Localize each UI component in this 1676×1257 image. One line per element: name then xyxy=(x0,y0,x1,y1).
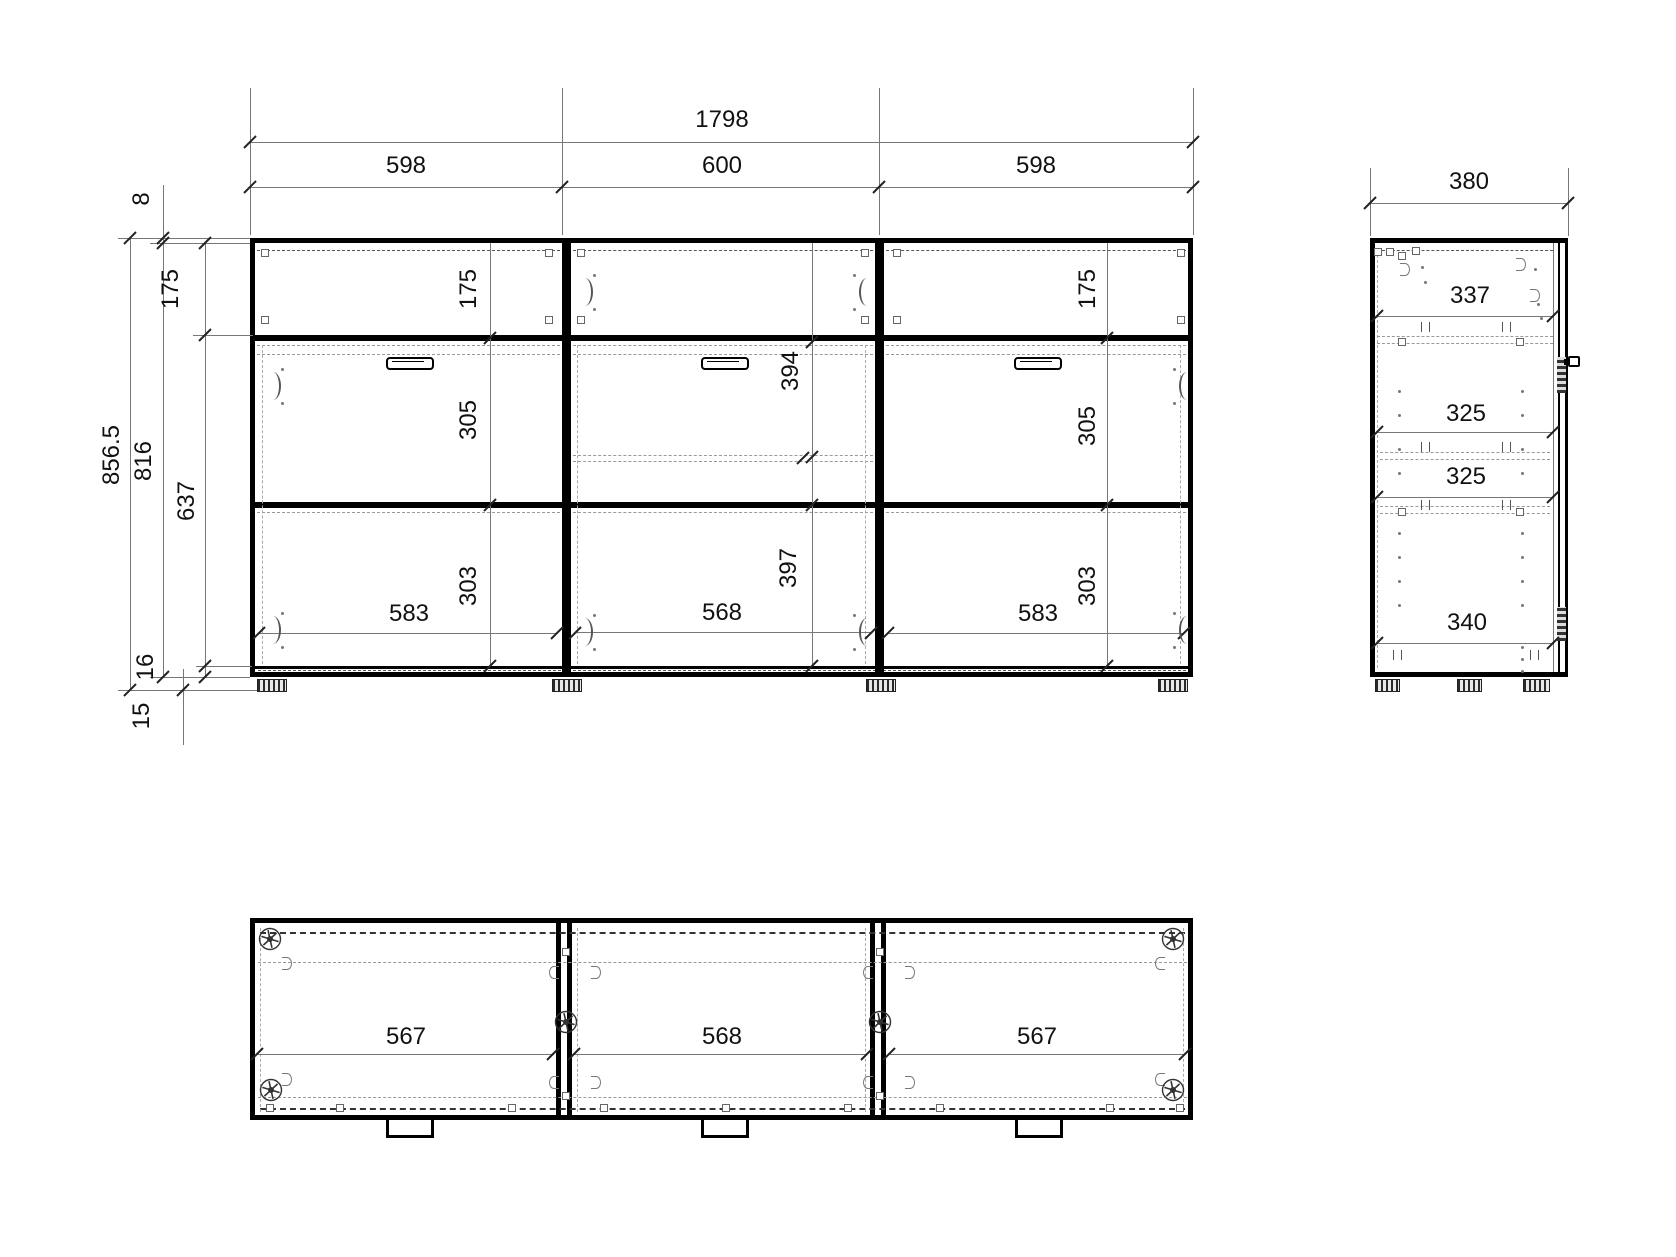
cabinet-foot xyxy=(552,679,582,692)
pin-hole-dot xyxy=(1398,580,1401,583)
front-dim-line xyxy=(575,632,871,633)
front-shelf-row1 xyxy=(255,335,1188,341)
front-dim-line xyxy=(1107,243,1108,666)
pin-hole-dot xyxy=(1398,448,1401,451)
cam-hook xyxy=(905,966,915,979)
hinge-pin-dot xyxy=(281,402,284,405)
extension-line xyxy=(1193,88,1194,235)
drawer-handle-right xyxy=(1014,357,1062,370)
pin-hole-dot xyxy=(1521,556,1524,559)
dowel-pin-mark xyxy=(1421,322,1430,332)
side-hidden-shelf xyxy=(1380,459,1550,460)
front-top-hidden-line xyxy=(573,250,873,251)
dim-label-col2-row2: 394 xyxy=(777,351,805,391)
cam-hook xyxy=(282,957,292,970)
fitting-mark xyxy=(1516,508,1524,516)
fitting-mark xyxy=(936,1104,944,1112)
fitting-mark xyxy=(1374,248,1382,256)
fitting-mark xyxy=(600,1104,608,1112)
pin-hole-dot xyxy=(1398,414,1401,417)
dim-label-col2-row3: 397 xyxy=(775,548,803,588)
fitting-mark xyxy=(722,1104,730,1112)
pin-hole-dot xyxy=(1521,448,1524,451)
fitting-mark xyxy=(261,249,269,257)
fitting-mark xyxy=(1398,508,1406,516)
cabinet-foot xyxy=(866,679,896,692)
drawer-handle-middle xyxy=(701,357,749,370)
fitting-mark xyxy=(562,948,570,956)
side-dim-line xyxy=(1377,643,1553,644)
cam-hook xyxy=(549,1076,559,1089)
front-hidden-edge xyxy=(262,345,263,664)
dim-line-380 xyxy=(1370,203,1568,204)
front-hidden-line xyxy=(886,354,1186,355)
side-hidden-shelf xyxy=(1377,336,1553,337)
dim-label-section2-width: 568 xyxy=(702,1023,742,1051)
side-handle-knob xyxy=(1568,356,1580,367)
dim-line-816 xyxy=(163,185,164,677)
hinge-pin-dot xyxy=(593,614,596,617)
pin-hole-dot xyxy=(1398,472,1401,475)
plan-handle-middle xyxy=(701,1120,749,1138)
cam-hook xyxy=(905,1076,915,1089)
pin-hole-dot xyxy=(1521,472,1524,475)
fitting-mark xyxy=(1398,338,1406,346)
front-shelf-row2 xyxy=(255,502,1188,508)
pin-hole-dot xyxy=(1424,281,1427,284)
fitting-mark xyxy=(577,249,585,257)
hinge-pin-dot xyxy=(281,646,284,649)
cam-hook xyxy=(591,966,601,979)
pin-hole-dot xyxy=(1540,317,1543,320)
fitting-mark xyxy=(266,1104,274,1112)
pin-hole-dot xyxy=(1521,646,1524,649)
dim-label-col1-row3: 303 xyxy=(455,566,483,606)
front-hidden-line xyxy=(573,345,873,346)
dim-label-col3-width: 598 xyxy=(1016,152,1056,180)
extension-line xyxy=(118,238,250,239)
cam-hook xyxy=(591,1076,601,1089)
fitting-mark xyxy=(545,316,553,324)
fitting-mark xyxy=(1398,252,1406,260)
pin-hole-dot xyxy=(1521,390,1524,393)
front-hidden-line xyxy=(573,354,873,355)
front-divider-2 xyxy=(875,243,884,672)
hinge-pin-dot xyxy=(1173,368,1176,371)
dim-line-1798 xyxy=(250,142,1193,143)
cam-hook xyxy=(282,1073,292,1086)
cam-wheel xyxy=(259,1078,283,1102)
dim-label-side-shelf4: 340 xyxy=(1447,609,1487,637)
front-mid-hidden-shelf xyxy=(573,461,873,462)
hinge-pin-dot xyxy=(281,368,284,371)
front-dim-line xyxy=(490,243,491,666)
cam-hook xyxy=(1155,957,1165,970)
bottom-dim-line xyxy=(574,1054,867,1055)
dowel-pin-mark xyxy=(1421,500,1430,510)
dim-label-col1-row1: 175 xyxy=(455,269,483,309)
cam-hook xyxy=(1400,263,1410,276)
pin-hole-dot xyxy=(1521,580,1524,583)
side-dim-line xyxy=(1377,316,1553,317)
hinge-pin-dot xyxy=(1173,402,1176,405)
front-top-hidden-line xyxy=(257,250,560,251)
technical-drawing-canvas: 1798 598 600 598 8 856.5 816 175 637 16 … xyxy=(0,0,1676,1257)
side-carcass-front-edge xyxy=(1553,243,1554,672)
fitting-mark xyxy=(861,316,869,324)
dowel-pin-mark xyxy=(1502,322,1511,332)
dowel-pin-mark xyxy=(1502,500,1511,510)
front-hidden-line xyxy=(573,512,873,513)
cam-hook xyxy=(863,966,873,979)
extension-line xyxy=(562,88,563,235)
front-divider-1 xyxy=(562,243,571,672)
fitting-mark xyxy=(261,316,269,324)
front-hidden-edge xyxy=(865,345,866,664)
dowel-pin-mark xyxy=(1421,442,1430,452)
side-top-hidden-line xyxy=(1377,250,1553,251)
fitting-mark xyxy=(876,1092,884,1100)
hinge-pin-dot xyxy=(593,648,596,651)
dim-label-section1-width: 567 xyxy=(386,1023,426,1051)
pin-hole-dot xyxy=(1537,303,1540,306)
hinge-pin-dot xyxy=(593,308,596,311)
fitting-mark xyxy=(1106,1104,1114,1112)
cam-hook xyxy=(1516,258,1526,271)
fitting-mark xyxy=(876,948,884,956)
dim-line-598-600-598 xyxy=(250,187,1193,188)
front-bottom-panel-line xyxy=(255,666,1188,669)
hinge-pin-dot xyxy=(853,274,856,277)
pin-hole-dot xyxy=(1398,532,1401,535)
front-hidden-line xyxy=(886,512,1186,513)
fitting-mark xyxy=(1177,249,1185,257)
pin-hole-dot xyxy=(1521,604,1524,607)
dim-label-row1-outer: 175 xyxy=(157,269,185,309)
extension-line xyxy=(879,88,880,235)
front-top-hidden-line xyxy=(886,250,1186,251)
dim-line-15 xyxy=(183,669,184,745)
hinge-arc xyxy=(577,618,593,646)
dim-label-section3-width: 567 xyxy=(1017,1023,1057,1051)
hinge-pin-dot xyxy=(853,614,856,617)
drawer-handle-left xyxy=(386,357,434,370)
side-hidden-shelf xyxy=(1380,452,1550,453)
dim-label-lower-height: 637 xyxy=(173,481,201,521)
pin-hole-dot xyxy=(1398,556,1401,559)
pin-hole-dot xyxy=(1521,670,1524,673)
pin-hole-dot xyxy=(1398,604,1401,607)
dim-label-top-offset: 8 xyxy=(128,192,156,205)
front-hidden-line xyxy=(257,345,560,346)
fitting-mark xyxy=(1516,338,1524,346)
cam-wheel xyxy=(868,1010,892,1034)
dim-label-body-height: 816 xyxy=(130,441,158,481)
pin-hole-dot xyxy=(1421,266,1424,269)
dim-label-total-width: 1798 xyxy=(695,106,748,134)
bottom-view-body xyxy=(250,918,1193,1120)
dowel-pin-mark xyxy=(1502,442,1511,452)
bottom-hidden-line xyxy=(258,962,1187,963)
fitting-mark xyxy=(1412,247,1420,255)
fitting-mark xyxy=(508,1104,516,1112)
hinge-arc xyxy=(1179,616,1195,644)
cabinet-foot xyxy=(257,679,287,692)
dowel-pin-mark xyxy=(1530,650,1539,660)
hinge-arc xyxy=(859,618,875,646)
fitting-mark xyxy=(893,316,901,324)
side-dim-line xyxy=(1377,432,1553,433)
cam-wheel xyxy=(1161,1078,1185,1102)
side-dim-line xyxy=(1377,497,1553,498)
hinge-pin-dot xyxy=(1173,612,1176,615)
dim-label-col3-row1: 175 xyxy=(1074,269,1102,309)
cam-wheel xyxy=(554,1010,578,1034)
dim-label-col1-width: 598 xyxy=(386,152,426,180)
dim-label-side-shelf2: 325 xyxy=(1446,400,1486,428)
cabinet-foot xyxy=(1375,679,1400,692)
hinge-arc xyxy=(577,278,593,306)
pin-hole-dot xyxy=(1521,414,1524,417)
cam-hook xyxy=(1530,289,1540,302)
dim-label-col2-width: 600 xyxy=(702,152,742,180)
cam-wheel xyxy=(1161,927,1185,951)
side-hidden-shelf xyxy=(1380,506,1550,507)
dim-label-overall-height: 856.5 xyxy=(98,425,126,485)
hinge-pin-dot xyxy=(853,308,856,311)
cam-hook xyxy=(549,966,559,979)
front-hidden-line xyxy=(257,512,560,513)
dim-label-col2-door: 568 xyxy=(702,599,742,627)
extension-line xyxy=(250,88,251,235)
dim-label-col3-row3: 303 xyxy=(1074,566,1102,606)
dim-label-side-shelf1: 337 xyxy=(1450,282,1490,310)
fitting-mark xyxy=(844,1104,852,1112)
hinge-pin-dot xyxy=(853,648,856,651)
plan-handle-right xyxy=(1015,1120,1063,1138)
cabinet-foot xyxy=(1523,679,1550,692)
fitting-mark xyxy=(545,249,553,257)
fitting-mark xyxy=(1386,248,1394,256)
extension-line xyxy=(150,677,250,678)
dim-label-col3-row2: 305 xyxy=(1074,406,1102,446)
hinge-pin-dot xyxy=(281,612,284,615)
fitting-mark xyxy=(1176,1104,1184,1112)
cabinet-foot xyxy=(1457,679,1482,692)
front-hidden-line xyxy=(257,354,560,355)
dim-label-col3-door: 583 xyxy=(1018,600,1058,628)
side-door-top-edge xyxy=(1557,240,1568,242)
dim-label-col1-door: 583 xyxy=(389,600,429,628)
hinge-arc xyxy=(1179,372,1195,400)
front-mid-hidden-shelf xyxy=(573,455,873,456)
hinge-pin-dot xyxy=(1173,646,1176,649)
dim-label-feet-height: 15 xyxy=(128,703,156,730)
bottom-back-groove xyxy=(260,932,1185,934)
dim-label-side-shelf3: 325 xyxy=(1446,463,1486,491)
pin-hole-dot xyxy=(1534,268,1537,271)
dim-label-bottom-panel: 16 xyxy=(132,654,160,681)
fitting-mark xyxy=(1177,316,1185,324)
hinge-arc xyxy=(859,278,875,306)
fitting-mark xyxy=(893,249,901,257)
dim-line-637 xyxy=(205,243,206,677)
dim-label-col1-row2: 305 xyxy=(455,400,483,440)
cam-hook xyxy=(863,1076,873,1089)
pin-hole-dot xyxy=(1521,658,1524,661)
hinge-arc xyxy=(265,616,281,644)
bottom-dim-line xyxy=(889,1054,1185,1055)
front-bottom-panel-dashes xyxy=(258,670,1186,671)
front-dim-line xyxy=(259,633,557,634)
front-hidden-edge xyxy=(577,345,578,664)
pin-hole-dot xyxy=(1398,390,1401,393)
hinge-pin-dot xyxy=(593,274,596,277)
dowel-pin-mark xyxy=(1393,650,1402,660)
front-hidden-line xyxy=(886,345,1186,346)
pin-hole-dot xyxy=(1521,532,1524,535)
extension-line xyxy=(150,243,250,244)
cam-wheel xyxy=(258,927,282,951)
dim-label-side-width: 380 xyxy=(1449,168,1489,196)
bottom-hidden-line xyxy=(258,1097,1187,1098)
cabinet-foot xyxy=(1158,679,1188,692)
bottom-dim-line xyxy=(257,1054,554,1055)
fitting-mark xyxy=(577,316,585,324)
plan-handle-left xyxy=(386,1120,434,1138)
extension-line xyxy=(118,690,262,691)
fitting-mark xyxy=(336,1104,344,1112)
fitting-mark xyxy=(562,1092,570,1100)
front-dim-line xyxy=(888,633,1184,634)
hinge-arc xyxy=(265,372,281,400)
fitting-mark xyxy=(861,249,869,257)
